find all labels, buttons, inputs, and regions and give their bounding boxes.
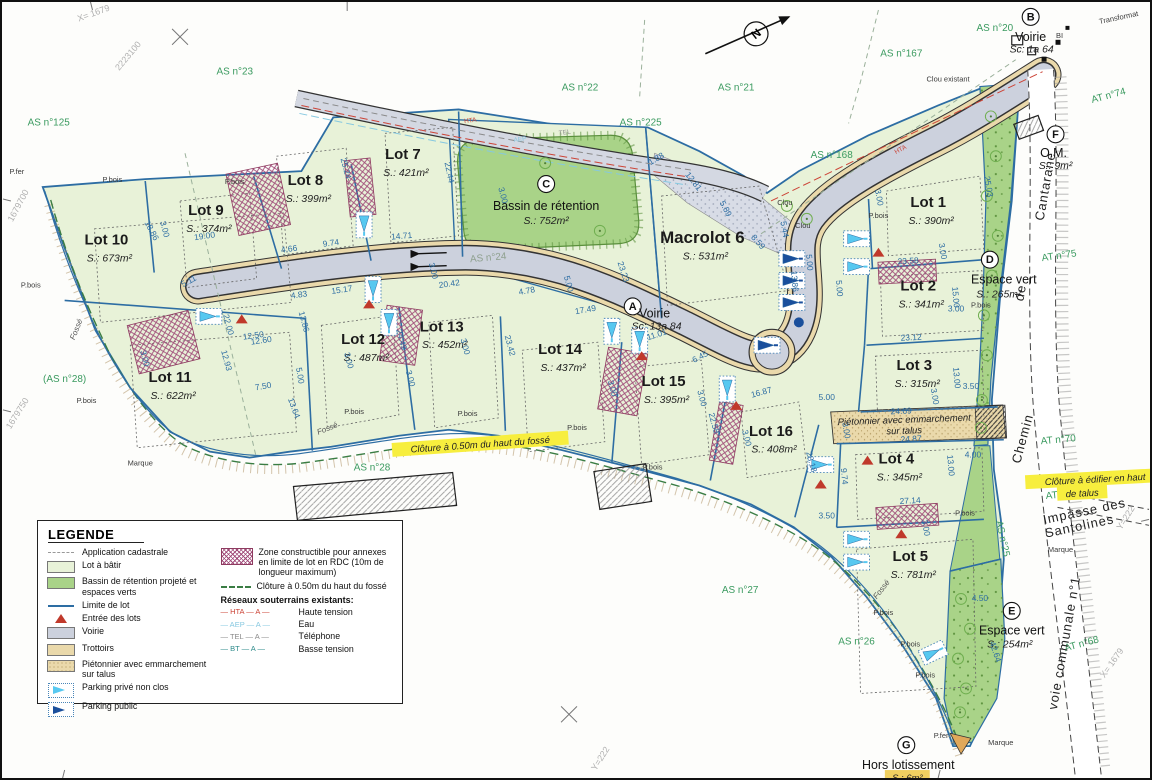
survey-marker-label: Marque xyxy=(128,459,153,468)
dimension-label: 23.58 xyxy=(897,255,919,266)
dimension-label: 13.00 xyxy=(945,454,957,476)
parking-public-icon xyxy=(779,294,805,310)
network-item-bt: — BT — A —Basse tension xyxy=(221,644,394,654)
dimension-label: 4.00 xyxy=(965,450,982,460)
network-code: — HTA — A — xyxy=(221,607,299,616)
lot-name: Lot 16 xyxy=(749,423,793,440)
dimension-label: 3.50 xyxy=(818,510,835,520)
survey-marker-label: P.bois xyxy=(77,396,97,405)
dimension-label: 13.86 xyxy=(789,270,801,292)
legend-item-bassin-espaces-verts: Bassin de rétention projeté et espaces v… xyxy=(46,576,215,596)
lot-name: Lot 1 xyxy=(910,194,946,211)
survey-marker-label: P.bois xyxy=(874,608,894,617)
trottoirs-swatch-icon xyxy=(46,644,76,656)
note-text: S.: 6m² xyxy=(892,773,923,778)
feature-letter: C xyxy=(542,179,550,191)
dimension-label: 23.12 xyxy=(900,332,922,343)
parcel-label: AS n°21 xyxy=(718,83,755,94)
survey-marker-label: P.bois xyxy=(21,281,41,290)
lot-name: Lot 14 xyxy=(538,341,583,358)
survey-marker-label: P.bois xyxy=(869,211,889,220)
note-label: sur talus xyxy=(886,425,922,437)
survey-marker-label: P.bois xyxy=(955,508,975,517)
application-cadastrale-swatch-icon xyxy=(46,548,76,553)
lot-name: Lot 11 xyxy=(149,369,192,386)
voirie-swatch-icon xyxy=(46,627,76,639)
legend-item-trottoirs: Trottoirs xyxy=(46,643,215,656)
survey-marker-label: Clou xyxy=(795,221,810,230)
feature-label: Voirie xyxy=(639,306,670,320)
lot-name: Lot 12 xyxy=(341,331,385,348)
survey-marker-label: BI xyxy=(1056,31,1063,40)
grid-coordinate-label: Y=222 xyxy=(589,745,611,772)
survey-marker-label: Marque xyxy=(1048,545,1073,554)
highlighted-note: S.: 6m² xyxy=(885,770,930,778)
feature-letter: A xyxy=(629,301,637,313)
grid-coordinate-label: 1679750 xyxy=(4,396,31,431)
parcel-label: (AS n°28) xyxy=(43,374,86,385)
feature-label: Voirie xyxy=(1015,30,1046,44)
legend-item-label: Application cadastrale xyxy=(82,547,168,557)
survey-marker-label: Marque xyxy=(988,738,1013,747)
feature-letter: E xyxy=(1008,605,1015,617)
legend-item-parking-prive: Parking privé non clos xyxy=(46,682,215,698)
lot-area: S.: 673m² xyxy=(87,254,133,265)
parcel-label: AS n°23 xyxy=(216,67,253,78)
survey-marker-label: Transformat xyxy=(1098,9,1140,26)
lot-name: Lot 15 xyxy=(642,373,686,390)
feature-g: GHors lotissement xyxy=(862,737,955,772)
parking-public-swatch-icon xyxy=(46,702,76,717)
survey-marker-label: P.fer xyxy=(934,731,949,740)
dimension-label: 9.74 xyxy=(839,468,850,486)
parking-private-icon xyxy=(365,277,381,303)
lot-area: S.: 437m² xyxy=(540,363,586,374)
legend-item-label: Bassin de rétention projeté et espaces v… xyxy=(82,576,215,596)
lot-area: S.: 345m² xyxy=(877,473,923,484)
dimension-label: 3.50 xyxy=(963,381,980,391)
feature-letter: F xyxy=(1052,129,1059,141)
north-arrow: N xyxy=(705,17,789,54)
lot-name: Lot 3 xyxy=(896,357,932,374)
network-label: Basse tension xyxy=(299,644,354,654)
dimension-label: 13.00 xyxy=(951,367,963,389)
legend-item-label: Parking public xyxy=(82,701,137,711)
lot-a-batir-swatch-icon xyxy=(46,561,76,573)
parcel-label: AS n°225 xyxy=(620,117,663,128)
network-label: Eau xyxy=(299,619,315,629)
dimension-label: 5.00 xyxy=(804,254,815,272)
parcel-label: AS n°125 xyxy=(28,117,71,128)
legend-item-label: Zone constructible pour annexes en limit… xyxy=(259,547,394,577)
legend-item-voirie: Voirie xyxy=(46,626,215,639)
lot-name: Macrolot 6 xyxy=(660,228,745,247)
legend-item-zone-constructible: Zone constructible pour annexes en limit… xyxy=(221,547,394,577)
networks-title: Réseaux souterrains existants: xyxy=(221,595,394,605)
survey-marker-label: Clou existant xyxy=(927,75,971,84)
legend-item-label: Piétonnier avec emmarchement sur talus xyxy=(82,659,215,679)
legend-item-pietonnier: Piétonnier avec emmarchement sur talus xyxy=(46,659,215,679)
lot-name: Lot 2 xyxy=(900,278,936,295)
lot-area: S.: 341m² xyxy=(899,299,945,310)
dimension-label: 4.50 xyxy=(972,593,989,603)
parcel-label: AS n°26 xyxy=(838,637,875,648)
legend-item-application-cadastrale: Application cadastrale xyxy=(46,547,215,557)
street-label: Chemin xyxy=(1009,412,1037,465)
parcel-label: AT n°74 xyxy=(1090,86,1127,106)
lot-area: S.: 531m² xyxy=(683,252,729,263)
feature-label: Hors lotissement xyxy=(862,758,955,772)
survey-marker-label: P.bois xyxy=(458,409,478,418)
parking-private-icon xyxy=(196,308,222,324)
dimension-label: 5.00 xyxy=(818,392,835,402)
zone-constructible-swatch-icon xyxy=(221,548,253,565)
lot-area: S.: 390m² xyxy=(909,216,955,227)
legend-item-label: Trottoirs xyxy=(82,643,114,653)
legend-item-label: Clôture à 0.50m du haut du fossé xyxy=(257,581,387,591)
dimension-label: 27.14 xyxy=(899,495,921,506)
survey-marker-label: P.fer xyxy=(9,167,24,176)
parking-private-icon xyxy=(844,554,870,570)
pietonnier-swatch-icon xyxy=(46,660,76,672)
lot-name: Lot 13 xyxy=(420,318,464,335)
parking-private-icon xyxy=(719,376,735,402)
lot-area: S.: 399m² xyxy=(286,194,332,205)
survey-marker-label: P.bois xyxy=(103,175,123,184)
legend-title: LEGENDE xyxy=(48,527,144,543)
feature-letter: G xyxy=(902,740,911,752)
parking-private-icon xyxy=(356,212,372,238)
legend-item-lot-a-batir: Lot à bâtir xyxy=(46,560,215,573)
network-label: Haute tension xyxy=(299,607,353,617)
grid-coordinate-label: X= 1679 xyxy=(1098,646,1125,679)
parking-private-icon xyxy=(604,318,620,344)
feature-label: Espace vert xyxy=(979,624,1045,638)
north-label: N xyxy=(748,26,763,42)
parking-private-icon xyxy=(844,231,870,247)
street-label: de xyxy=(1011,283,1029,302)
feature-label: S.: 752m² xyxy=(524,216,570,227)
bassin-espaces-verts-swatch-icon xyxy=(46,577,76,589)
survey-marker-label: P.bois xyxy=(225,177,245,186)
network-item-aep: — AEP — A —Eau xyxy=(221,619,394,629)
feature-label: Sc: 1a 64 xyxy=(1010,45,1054,56)
lot-area: S.: 781m² xyxy=(891,570,937,581)
network-item-hta: — HTA — A —Haute tension xyxy=(221,607,394,617)
parcel-label: AS n°168 xyxy=(811,150,854,161)
parcel-label: AS n°22 xyxy=(562,83,599,94)
parking-public-dot-icon xyxy=(794,317,804,327)
lot-area: S.: 408m² xyxy=(751,445,797,456)
grid-coordinate-label: 2223100 xyxy=(113,39,143,72)
entree-des-lots-swatch-icon xyxy=(46,614,76,623)
legend-item-label: Parking privé non clos xyxy=(82,682,169,692)
dimension-label: 3.00 xyxy=(948,303,965,313)
parcel-label: AS n°20 xyxy=(977,23,1014,34)
grid-coordinate-label: 1679700 xyxy=(6,188,31,223)
highlighted-note: de talus xyxy=(1057,484,1108,501)
network-code: — TEL — A — xyxy=(221,632,299,641)
network-code: — AEP — A — xyxy=(221,620,299,629)
lot-area: S.: 622m² xyxy=(150,391,196,402)
feature-letter: B xyxy=(1027,11,1035,23)
survey-marker-label: P.bois xyxy=(900,640,920,649)
feature-b: BVoirieSc: 1a 64 xyxy=(1010,8,1054,55)
parking-prive-swatch-icon xyxy=(46,683,76,698)
legend-item-entree-des-lots: Entrée des lots xyxy=(46,613,215,623)
legend-box: LEGENDE Application cadastraleLot à bâti… xyxy=(37,520,403,704)
parking-public-icon xyxy=(754,337,780,353)
network-label: Téléphone xyxy=(299,631,341,641)
network-code: — BT — A — xyxy=(221,644,299,653)
survey-marker-label: P.bois xyxy=(567,423,587,432)
parking-private-icon xyxy=(844,531,870,547)
legend-item-parking-public: Parking public xyxy=(46,701,215,717)
feature-label: Espace vert xyxy=(971,273,1037,287)
lot-area: S.: 421m² xyxy=(383,168,429,179)
lot-name: Lot 10 xyxy=(84,232,128,249)
survey-marker-label: P.bois xyxy=(971,300,991,309)
legend-item-label: Voirie xyxy=(82,626,104,636)
subdivision-plan: N Lot 1S.: 390m²Lot 2S.: 341m²Lot 3S.: 3… xyxy=(0,0,1152,780)
survey-marker-label: P.bois xyxy=(915,671,935,680)
legend-item-label: Lot à bâtir xyxy=(82,560,121,570)
legend-left-column: Application cadastraleLot à bâtirBassin … xyxy=(46,547,215,721)
parking-public-icon xyxy=(779,251,805,267)
legend-right-column: Zone constructible pour annexes en limit… xyxy=(221,547,394,721)
legend-item-cloture-fosse: Clôture à 0.50m du haut du fossé xyxy=(221,581,394,591)
note-text: de talus xyxy=(1065,488,1099,501)
survey-marker-label: Clou xyxy=(777,198,792,207)
lot-name: Lot 9 xyxy=(188,202,224,219)
lot-area: S.: 395m² xyxy=(644,395,690,406)
cloture-fosse-swatch-icon xyxy=(221,582,251,588)
parcel-label: AS n°27 xyxy=(722,585,759,596)
lot-name: Lot 4 xyxy=(879,451,915,468)
lot-name: Lot 5 xyxy=(892,548,928,565)
parking-private-icon xyxy=(844,259,870,275)
survey-marker-label: P.bois xyxy=(344,407,364,416)
dimension-label: 14.71 xyxy=(391,230,413,242)
feature-letter: D xyxy=(986,254,994,266)
network-item-tel: — TEL — A —Téléphone xyxy=(221,631,394,641)
lot-name: Lot 8 xyxy=(288,172,324,189)
lot-name: Lot 7 xyxy=(385,146,421,163)
parcel-label: AT n°70 xyxy=(1040,433,1076,447)
grid-coordinate-label: X= 1679 xyxy=(76,3,111,24)
parcel-label: AS n°28 xyxy=(354,463,391,474)
fosse-label: Fossé xyxy=(68,317,85,341)
survey-marker-label: P.bois xyxy=(643,463,663,472)
parcel-label: AS n°167 xyxy=(880,49,923,60)
limite-de-lot-swatch-icon xyxy=(46,601,76,607)
legend-item-label: Entrée des lots xyxy=(82,613,141,623)
dimension-label: 5.00 xyxy=(834,280,845,298)
legend-item-limite-de-lot: Limite de lot xyxy=(46,600,215,610)
legend-item-label: Limite de lot xyxy=(82,600,129,610)
